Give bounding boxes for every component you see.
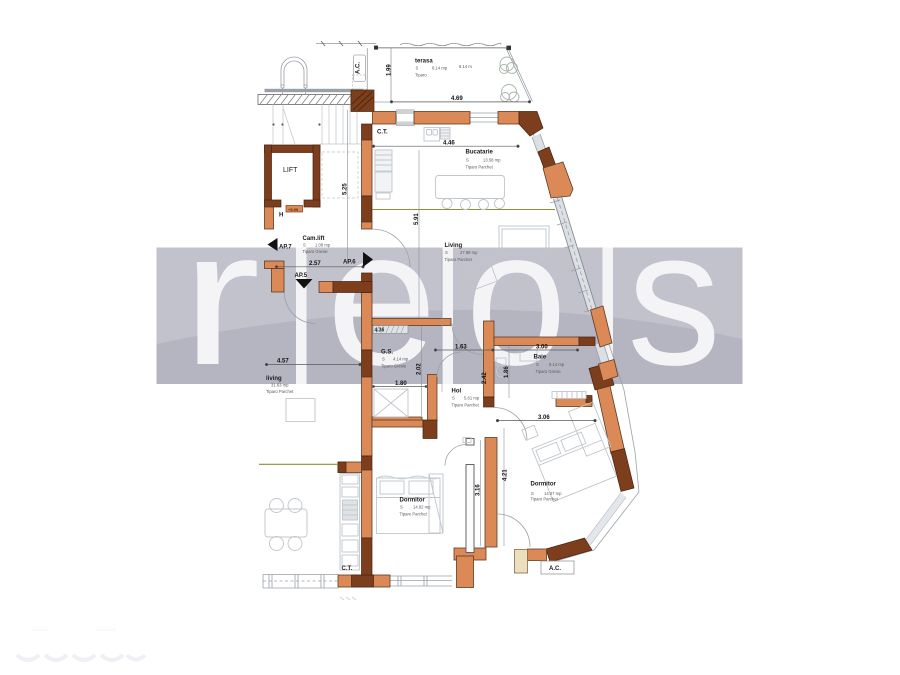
svg-text:4.36: 4.36 xyxy=(375,328,385,334)
svg-text:Tiparo Parchet: Tiparo Parchet xyxy=(531,497,559,502)
svg-text:terasa: terasa xyxy=(415,59,433,65)
svg-text:1.86: 1.86 xyxy=(504,366,510,378)
svg-text:Tipare Parchet: Tipare Parchet xyxy=(400,512,428,517)
svg-text:4.14 mp: 4.14 mp xyxy=(393,357,409,362)
svg-text:Living: Living xyxy=(445,243,463,249)
svg-text:aaaaa: aaaaa xyxy=(32,627,49,633)
svg-text:AP.5: AP.5 xyxy=(295,273,308,279)
svg-text:Tiparo Gresie: Tiparo Gresie xyxy=(381,364,407,369)
svg-text:A.C.: A.C. xyxy=(356,62,362,74)
svg-text:+5.99: +5.99 xyxy=(288,207,299,212)
svg-text:S: S xyxy=(400,505,403,510)
svg-text:14.07 mp: 14.07 mp xyxy=(544,491,562,496)
svg-text:C.T.: C.T. xyxy=(377,130,388,136)
svg-text:S: S xyxy=(536,362,539,367)
svg-text:Tiparo: Tiparo xyxy=(415,73,427,78)
svg-text:1.80: 1.80 xyxy=(395,381,407,387)
svg-text:14.82 mp: 14.82 mp xyxy=(413,505,431,510)
svg-text:2.42: 2.42 xyxy=(482,372,488,384)
svg-text:Cam.lift: Cam.lift xyxy=(303,236,325,242)
svg-text:Tiparo Gresie: Tiparo Gresie xyxy=(536,369,562,374)
svg-text:9.14 mp: 9.14 mp xyxy=(549,362,565,367)
svg-text:aaaaaa: aaaaaa xyxy=(96,627,117,633)
svg-text:1.99: 1.99 xyxy=(387,64,393,76)
svg-text:Dormitor: Dormitor xyxy=(531,482,557,488)
svg-text:4.21: 4.21 xyxy=(503,469,509,481)
svg-text:31.63 mp: 31.63 mp xyxy=(271,383,289,388)
svg-text:3.06: 3.06 xyxy=(538,415,550,421)
svg-text:Tiparo Gresie: Tiparo Gresie xyxy=(303,249,329,254)
svg-text:13.58 mp: 13.58 mp xyxy=(483,158,501,163)
svg-text:G.S.: G.S. xyxy=(381,350,393,356)
svg-text:5.91: 5.91 xyxy=(414,213,420,225)
svg-text:1.08 mp: 1.08 mp xyxy=(315,243,331,248)
svg-text:Dormitor: Dormitor xyxy=(400,498,426,504)
svg-text:Hol: Hol xyxy=(452,389,462,395)
svg-text:A.C.: A.C. xyxy=(549,566,561,572)
svg-text:27.88 mp: 27.88 mp xyxy=(460,250,478,255)
svg-text:4.46: 4.46 xyxy=(443,141,455,147)
svg-text:3.00: 3.00 xyxy=(536,344,548,350)
svg-text:8.14 m: 8.14 m xyxy=(459,64,472,69)
svg-text:Tiparo Parchet: Tiparo Parchet xyxy=(266,389,294,394)
svg-text:4.69: 4.69 xyxy=(451,96,463,102)
svg-text:LIFT: LIFT xyxy=(283,167,298,174)
svg-text:Tiparo Parchet: Tiparo Parchet xyxy=(445,257,473,262)
svg-text:S: S xyxy=(466,158,469,163)
svg-text:S: S xyxy=(452,396,455,401)
svg-text:3.16: 3.16 xyxy=(476,484,482,496)
svg-text:Bucatarie: Bucatarie xyxy=(466,150,494,156)
svg-text:C.T.: C.T. xyxy=(342,566,353,572)
svg-text:H: H xyxy=(279,213,283,219)
svg-text:Tiparo Parchet: Tiparo Parchet xyxy=(466,165,494,170)
svg-text:4.57: 4.57 xyxy=(277,359,289,365)
svg-text:S: S xyxy=(382,357,385,362)
svg-text:Tiparo Parchet: Tiparo Parchet xyxy=(452,403,480,408)
svg-text:living: living xyxy=(266,376,282,382)
svg-text:2.57: 2.57 xyxy=(309,261,321,267)
svg-text:Baie: Baie xyxy=(534,355,547,361)
svg-text:AP.6: AP.6 xyxy=(343,260,356,266)
svg-text:8.14 mp: 8.14 mp xyxy=(432,66,448,71)
svg-text:s: s xyxy=(627,190,721,406)
svg-text:r: r xyxy=(181,190,261,406)
svg-text:S: S xyxy=(303,243,306,248)
svg-text:S: S xyxy=(445,250,448,255)
svg-text:S: S xyxy=(416,66,419,71)
svg-text:2.02: 2.02 xyxy=(417,363,423,375)
svg-text:1.63: 1.63 xyxy=(455,344,467,350)
svg-text:AP.7: AP.7 xyxy=(279,245,292,251)
svg-text:S: S xyxy=(531,491,534,496)
svg-text:5.25: 5.25 xyxy=(343,183,349,195)
svg-text:5.61 mp: 5.61 mp xyxy=(464,396,480,401)
